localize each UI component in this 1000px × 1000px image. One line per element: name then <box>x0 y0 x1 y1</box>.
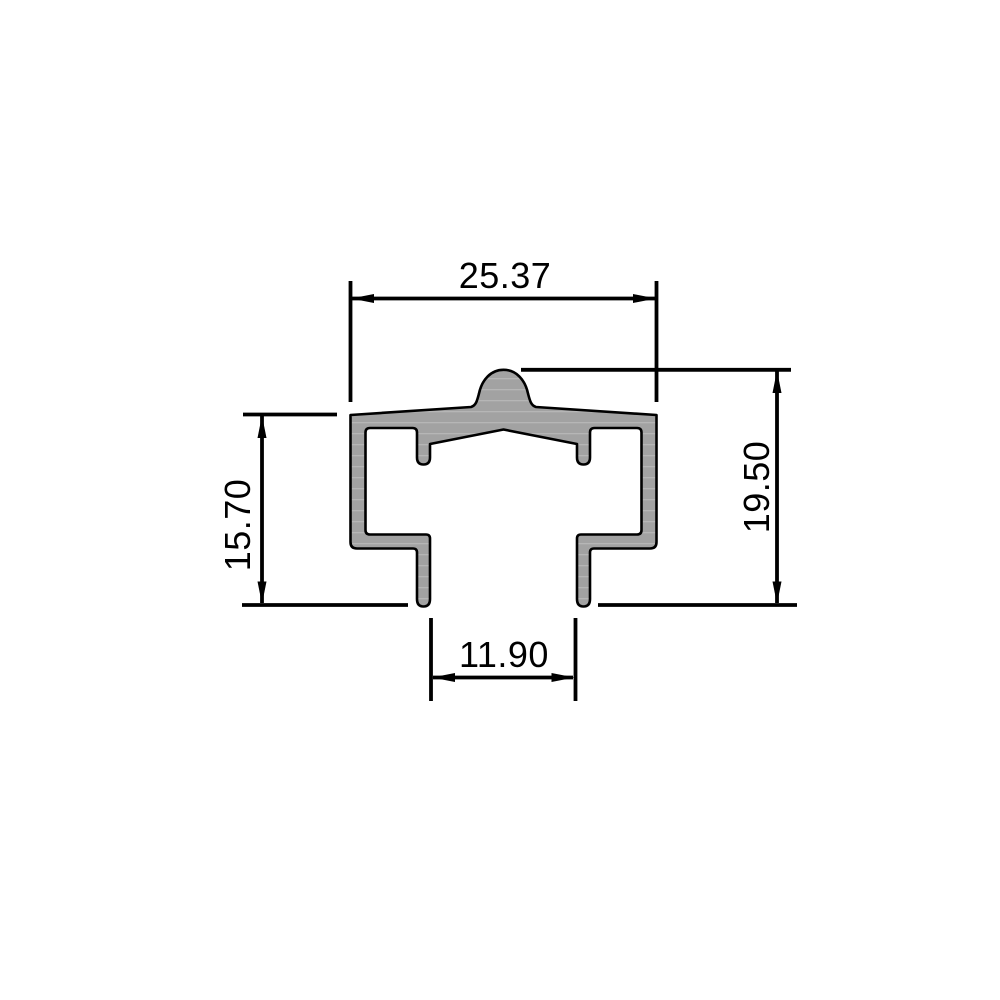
dimension-arrow-right <box>633 294 656 303</box>
dimension-arrow-top <box>773 371 782 394</box>
dimension-arrow-bottom <box>258 582 267 605</box>
dimension-arrow-top <box>258 416 267 439</box>
extrusion-profile <box>351 370 657 607</box>
dimension-bottom-gap: 11.90 <box>431 618 576 701</box>
dimension-right-height: 19.50 <box>521 370 797 605</box>
dimension-value-top-width: 25.37 <box>459 255 552 296</box>
technical-drawing: 25.37 15.70 19.50 11.90 <box>0 0 1000 1000</box>
dimension-value-bottom-gap: 11.90 <box>459 634 549 675</box>
dimension-value-right-height: 19.50 <box>736 441 777 534</box>
extrusion-profile-shape <box>351 370 657 607</box>
dimension-arrow-right <box>552 673 575 682</box>
drawing-canvas: 25.37 15.70 19.50 11.90 <box>0 0 1000 1000</box>
dimension-arrow-bottom <box>773 582 782 605</box>
dimension-arrow-left <box>351 294 374 303</box>
dimension-left-height: 15.70 <box>217 415 408 606</box>
dimension-value-left-height: 15.70 <box>217 479 258 572</box>
dimension-arrow-left <box>432 673 455 682</box>
